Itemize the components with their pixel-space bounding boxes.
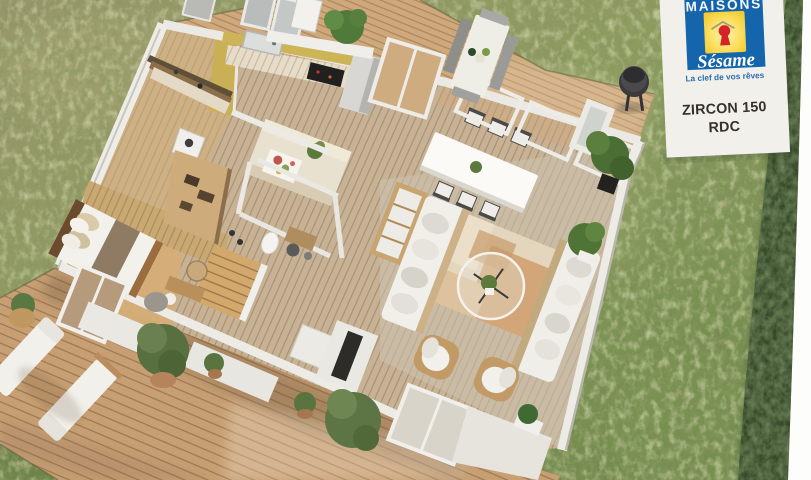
svg-text:Sésame: Sésame (697, 50, 755, 73)
svg-text:RDC: RDC (708, 119, 740, 136)
